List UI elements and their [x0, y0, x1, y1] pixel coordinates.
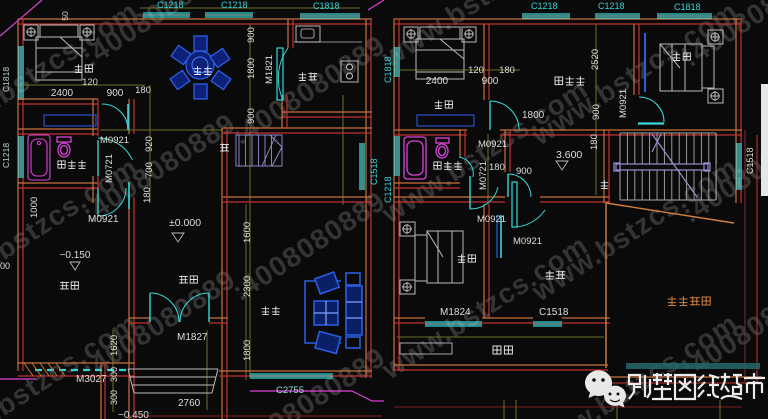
svg-text:C1518: C1518 [745, 147, 755, 174]
svg-text:C1518: C1518 [539, 307, 569, 318]
svg-text:M0921: M0921 [100, 135, 129, 146]
svg-text:C1218: C1218 [157, 0, 184, 10]
svg-text:900: 900 [246, 108, 257, 124]
svg-text:180: 180 [489, 162, 505, 173]
svg-text:−0.450: −0.450 [118, 410, 149, 419]
svg-text:900: 900 [482, 76, 499, 87]
svg-text:900: 900 [591, 104, 602, 120]
svg-text:C1218: C1218 [1, 143, 11, 168]
svg-text:920: 920 [144, 136, 155, 152]
svg-text:M0921: M0921 [477, 214, 506, 225]
svg-text:M1824: M1824 [440, 307, 471, 318]
svg-text:M3027: M3027 [76, 374, 107, 385]
svg-text:C1218: C1218 [531, 1, 558, 11]
svg-text:50: 50 [60, 11, 70, 21]
svg-text:C1818: C1818 [1, 67, 11, 92]
svg-text:M0921: M0921 [88, 214, 119, 225]
svg-text:700: 700 [144, 162, 155, 178]
svg-text:M0921: M0921 [478, 139, 507, 150]
svg-text:2760: 2760 [178, 398, 201, 409]
svg-text:900: 900 [107, 88, 124, 99]
svg-text:C1518: C1518 [369, 158, 379, 185]
svg-text:2300: 2300 [242, 276, 253, 297]
svg-text:−0.150: −0.150 [60, 250, 91, 261]
svg-text:M0921: M0921 [513, 236, 542, 247]
svg-text:1000: 1000 [29, 197, 40, 218]
svg-text:C2755: C2755 [276, 385, 304, 396]
svg-text:2400: 2400 [51, 88, 74, 99]
svg-text:300: 300 [109, 367, 119, 382]
svg-text:M1821: M1821 [264, 55, 275, 84]
svg-text:C1218: C1218 [383, 176, 393, 203]
svg-text:180: 180 [142, 187, 153, 203]
svg-text:±0.000: ±0.000 [169, 217, 201, 229]
svg-text:1800: 1800 [246, 58, 257, 79]
svg-text:C1818: C1818 [674, 2, 701, 12]
svg-text:900: 900 [246, 27, 257, 43]
svg-text:00: 00 [0, 261, 10, 271]
svg-text:2520: 2520 [590, 49, 601, 70]
svg-text:1620: 1620 [109, 335, 120, 356]
svg-text:C1818: C1818 [313, 1, 340, 11]
svg-text:1800: 1800 [242, 340, 253, 361]
svg-text:M1827: M1827 [177, 332, 208, 343]
svg-text:180: 180 [499, 65, 515, 76]
svg-text:M0921: M0921 [618, 89, 629, 118]
svg-text:C1818: C1818 [383, 56, 393, 83]
svg-text:3.600: 3.600 [556, 149, 582, 161]
svg-text:120: 120 [468, 65, 484, 76]
svg-text:C1218: C1218 [221, 0, 248, 10]
svg-text:M0721: M0721 [104, 154, 115, 183]
svg-text:C1218: C1218 [598, 1, 625, 11]
svg-text:1800: 1800 [522, 110, 545, 121]
svg-text:180: 180 [589, 134, 600, 150]
svg-text:1600: 1600 [242, 222, 253, 243]
svg-text:900: 900 [516, 166, 532, 177]
svg-text:300: 300 [109, 390, 119, 405]
svg-text:M0721: M0721 [478, 161, 489, 190]
svg-text:180: 180 [135, 85, 151, 96]
svg-text:2400: 2400 [426, 76, 449, 87]
svg-text:120: 120 [82, 77, 98, 88]
